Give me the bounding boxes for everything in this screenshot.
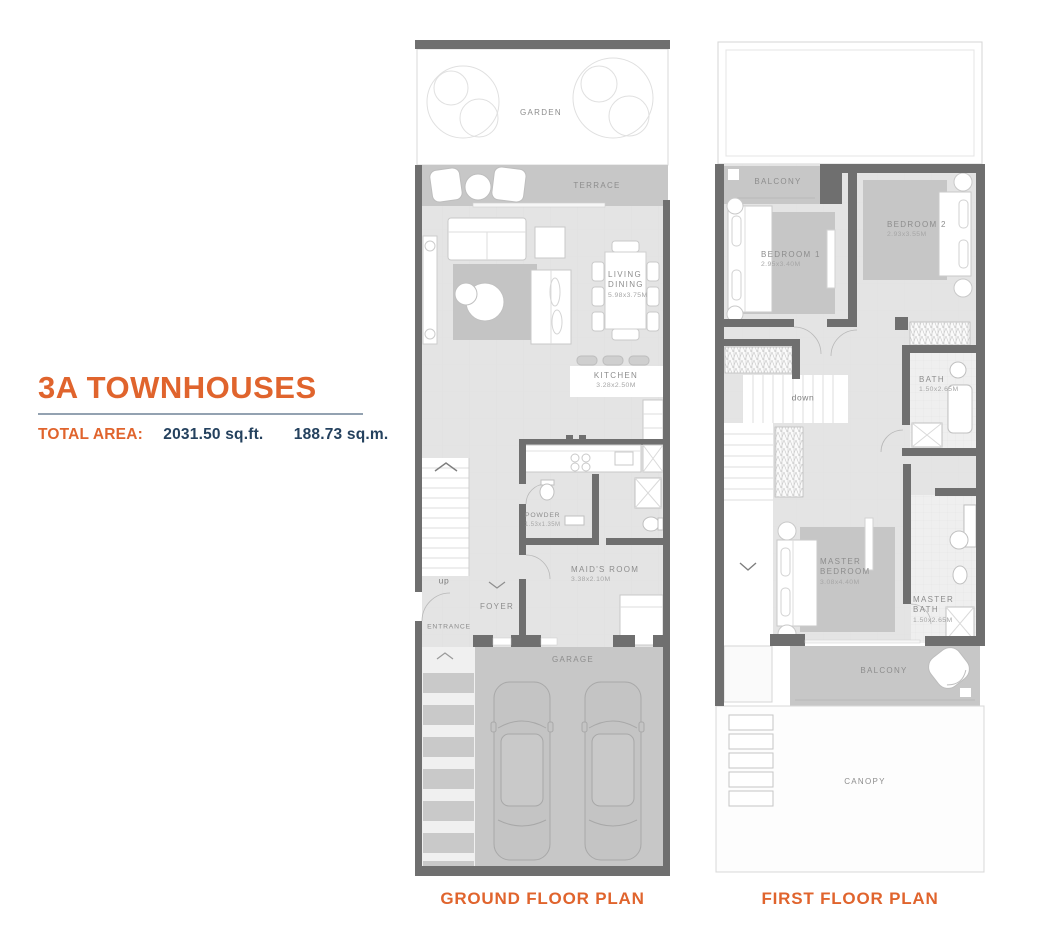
bedroom1-area — [727, 198, 835, 322]
roof-void — [724, 646, 772, 702]
wardrobe-icon — [725, 347, 792, 373]
side-table-icon — [954, 279, 972, 297]
area-sqm: 188.73 sq.m. — [294, 426, 389, 443]
tv-console-icon — [531, 270, 571, 344]
bed-icon — [728, 206, 772, 312]
wardrobe-icon — [910, 322, 970, 345]
kitchen-island — [570, 356, 663, 397]
console-table — [423, 236, 437, 344]
bed-icon — [777, 540, 817, 626]
divider-rule — [38, 413, 363, 415]
armchair-icon — [535, 227, 565, 258]
bath-area — [910, 353, 976, 448]
page-title: 3A TOWNHOUSES — [38, 372, 378, 403]
sofa-icon — [448, 218, 526, 260]
sliding-door — [473, 203, 605, 207]
canopy-area — [716, 706, 984, 872]
first-floor-plan: BALCONY BEDROOM 1 2.95x3.40M BEDROOM 2 2… — [715, 40, 985, 876]
side-table-icon — [778, 522, 796, 540]
side-table-icon — [727, 198, 743, 214]
first-floor-caption: FIRST FLOOR PLAN — [715, 889, 985, 909]
garden-area — [417, 49, 668, 165]
basin-icon — [565, 516, 584, 525]
rear-balcony-area — [790, 643, 980, 706]
bench-icon — [827, 230, 835, 288]
toilet-icon — [643, 517, 663, 531]
basin-icon — [950, 362, 966, 378]
entry-steps — [729, 715, 773, 806]
area-sqft: 2031.50 sq.ft. — [163, 426, 263, 443]
door-opening — [519, 484, 526, 504]
sliding-door — [805, 640, 920, 643]
basin-icon — [950, 531, 968, 549]
shower-icon — [635, 478, 661, 508]
front-balcony-area — [724, 166, 827, 204]
stairs-up — [422, 458, 469, 576]
ground-floor-caption: GROUND FLOOR PLAN — [415, 889, 670, 909]
entrance-door-opening — [415, 592, 422, 621]
bench-icon — [865, 518, 873, 570]
side-table-icon — [455, 283, 477, 305]
wardrobe-icon — [775, 427, 803, 497]
shower-icon — [912, 423, 942, 447]
kitchen-counter — [519, 435, 663, 472]
ground-floor-plan-drawing — [415, 40, 670, 876]
rug — [863, 180, 947, 280]
shower-icon — [946, 607, 974, 640]
pantry-unit — [643, 400, 663, 442]
car-icon — [582, 682, 644, 860]
door-opening — [519, 555, 526, 579]
toilet-icon — [953, 566, 967, 584]
roof-outline — [718, 42, 982, 164]
garage-area — [422, 647, 663, 866]
threshold — [541, 638, 557, 645]
toilet-icon — [540, 480, 554, 500]
terrace-area — [417, 165, 668, 206]
master-bath-area — [911, 495, 976, 643]
title-block: 3A TOWNHOUSES TOTAL AREA: 2031.50 sq.ft.… — [38, 372, 378, 444]
total-area-label: TOTAL AREA: — [38, 426, 143, 443]
bathtub-icon — [948, 385, 972, 433]
ground-floor-plan: GARDEN TERRACE LIVING DINING 5.98x3.75M … — [415, 40, 670, 876]
bed-icon — [939, 192, 971, 276]
first-floor-plan-drawing — [715, 40, 985, 876]
side-table-icon — [954, 173, 972, 191]
side-table-icon — [960, 688, 971, 697]
floorplan-page: 3A TOWNHOUSES TOTAL AREA: 2031.50 sq.ft.… — [0, 0, 1044, 934]
car-icon — [491, 682, 553, 860]
total-area-row: TOTAL AREA: 2031.50 sq.ft. 188.73 sq.m. — [38, 426, 378, 444]
threshold — [493, 638, 511, 645]
